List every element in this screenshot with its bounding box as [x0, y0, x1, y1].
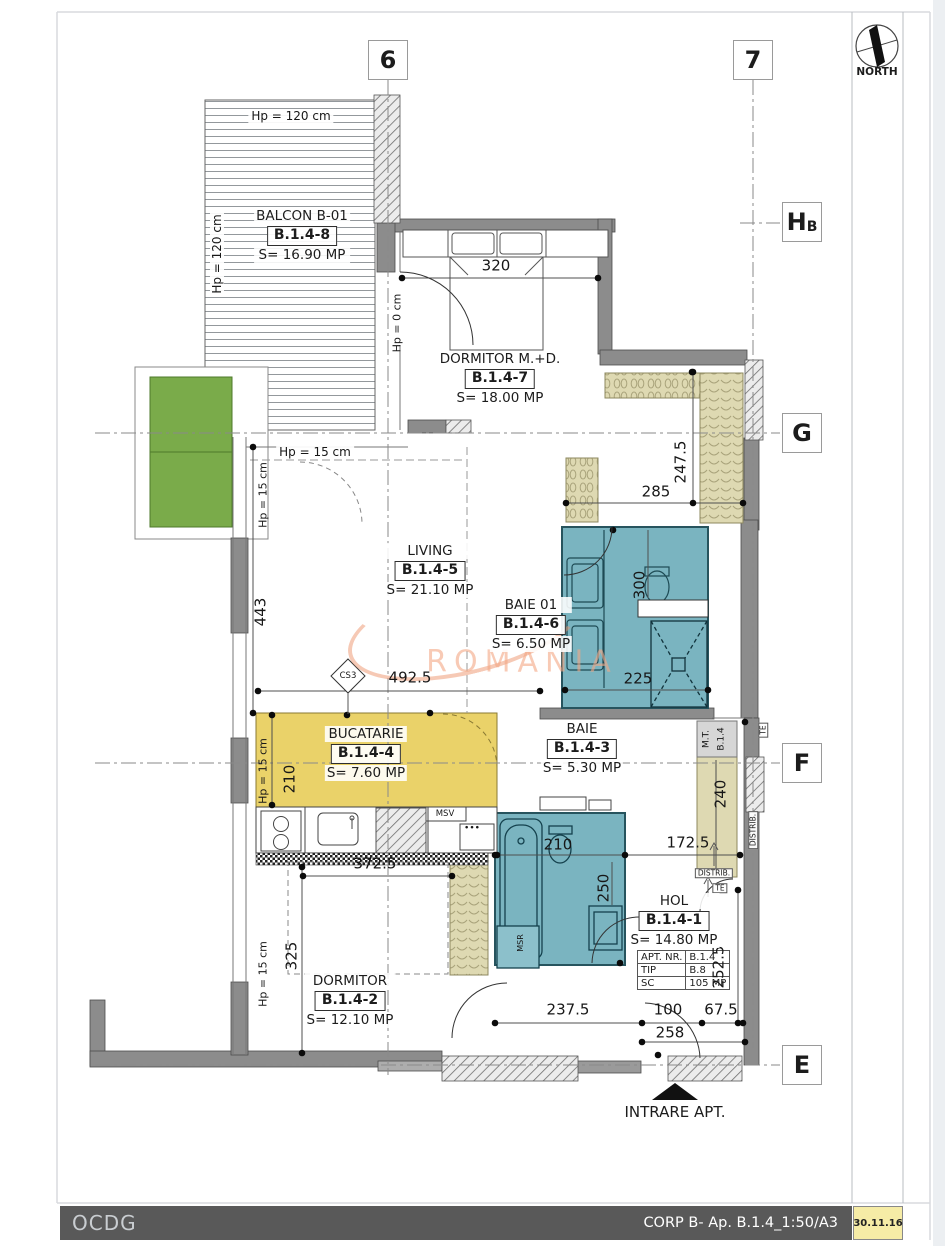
- room-code: B.1.4-3: [547, 739, 617, 758]
- apt-table-cell: SC: [638, 977, 686, 990]
- title-bar: OCDG CORP B- Ap. B.1.4_1:50/A3: [60, 1206, 852, 1240]
- dimension-label: 320: [482, 259, 511, 274]
- dimension-label: 372.5: [354, 857, 397, 872]
- room-area: S= 5.30 MP: [541, 760, 623, 776]
- dimension-label: 300: [633, 571, 648, 600]
- distrib-strip: [697, 757, 737, 877]
- grid-row-H: HB: [782, 202, 822, 242]
- annotation-label: Hp = 15 cm: [276, 445, 354, 459]
- annotation-label: Hp = 120 cm: [210, 211, 224, 296]
- dimension-label: 250: [597, 874, 612, 903]
- room-name: HOL: [629, 893, 720, 909]
- pillow: [452, 233, 494, 254]
- title-bar-left: OCDG: [72, 1211, 137, 1235]
- room-area: S= 16.90 MP: [254, 247, 350, 263]
- annotation-label: Hp = 15 cm: [258, 462, 269, 528]
- room-label-block: BAIE 01B.1.4-6S= 6.50 MP: [490, 597, 572, 652]
- entrance-arrow-icon: [652, 1083, 698, 1100]
- shower: [651, 621, 707, 707]
- room-code: B.1.4-4: [331, 744, 401, 763]
- door-bedroom-2: [452, 983, 507, 1038]
- room-name: BUCATARIE: [325, 726, 407, 742]
- annotation-label: DISTRIB.: [748, 811, 758, 849]
- room-label-block: HOLB.1.4-1S= 14.80 MP: [629, 893, 720, 948]
- floor-plan-sheet: ROMANIA NORTH APT. NR. B.1.4 TIP B.8 SC …: [0, 0, 945, 1246]
- room-name: DORMITOR M.+D.: [438, 351, 563, 367]
- room-area: S= 14.80 MP: [629, 932, 720, 948]
- date-box: 30.11.16: [853, 1206, 903, 1240]
- room-label-block: BAIEB.1.4-3S= 5.30 MP: [541, 721, 623, 776]
- north-label: NORTH: [856, 66, 897, 78]
- wardrobe-right: [700, 373, 743, 523]
- room-code: B.1.4-6: [496, 615, 566, 634]
- room-label-block: LIVINGB.1.4-5S= 21.10 MP: [385, 543, 476, 598]
- annotation-label: Hp = 0 cm: [392, 294, 403, 353]
- annotation-label: TE: [712, 883, 727, 893]
- apt-table-cell: APT. NR.: [638, 951, 686, 964]
- dimension-label: 225: [624, 672, 653, 687]
- dimension-label: 67.5: [704, 1003, 737, 1018]
- annotation-label: M.T.: [703, 730, 712, 748]
- dimension-label: 443: [254, 598, 269, 627]
- title-bar-right: CORP B- Ap. B.1.4_1:50/A3: [643, 1215, 838, 1231]
- apt-table-cell: TIP: [638, 964, 686, 977]
- annotation-label: TE: [758, 722, 768, 737]
- north-compass-icon: [856, 25, 898, 67]
- room-name: BAIE 01: [490, 597, 572, 613]
- dimension-label: 492.5: [389, 671, 432, 686]
- dimension-label: 240: [714, 780, 729, 809]
- room-name: BAIE: [541, 721, 623, 737]
- room-name: LIVING: [385, 543, 476, 559]
- room-name: BALCON B-01: [254, 208, 350, 224]
- annotation-label: •••: [464, 825, 480, 834]
- grid-row-F: F: [782, 743, 822, 783]
- wardrobe-top: [605, 373, 700, 398]
- room-area: S= 6.50 MP: [490, 636, 572, 652]
- room-code: B.1.4-5: [395, 561, 465, 580]
- annotation-label: CS3: [340, 672, 357, 681]
- annotation-label: Hp = 120 cm: [248, 109, 333, 123]
- dimension-label: 247.5: [674, 441, 689, 484]
- dimension-label: 172.5: [667, 836, 710, 851]
- pillow: [500, 233, 542, 254]
- dimension-label: 210: [544, 838, 573, 853]
- room-code: B.1.4-7: [465, 369, 535, 388]
- dimension-label: 325: [285, 942, 300, 971]
- dimension-label: 285: [642, 485, 671, 500]
- annotation-label: MSV: [436, 810, 455, 819]
- grid-row-G: G: [782, 413, 822, 453]
- room-area: S= 12.10 MP: [305, 1012, 396, 1028]
- room-label-block: DORMITORB.1.4-2S= 12.10 MP: [305, 973, 396, 1028]
- bed-bedroom2: [288, 862, 448, 974]
- door-living: [300, 462, 362, 524]
- annotation-label: Hp = 15 cm: [258, 941, 269, 1007]
- wardrobe-bedroom2: [450, 852, 488, 975]
- dimension-label: 252.5: [712, 946, 727, 989]
- room-label-block: DORMITOR M.+D.B.1.4-7S= 18.00 MP: [438, 351, 563, 406]
- grid-column-7: 7: [733, 40, 773, 80]
- grid-column-6: 6: [368, 40, 408, 80]
- dimension-label: 100: [654, 1003, 683, 1018]
- annotation-label: B.1.4: [718, 727, 727, 750]
- room-name: DORMITOR: [305, 973, 396, 989]
- dimension-label: 258: [656, 1026, 685, 1041]
- dimension-label: 210: [283, 765, 298, 794]
- wardrobe-small: [566, 458, 598, 522]
- room-code: B.1.4-2: [315, 991, 385, 1010]
- entrance-label: INTRARE APT.: [624, 1103, 725, 1121]
- grid-row-E: E: [782, 1045, 822, 1085]
- room-label-block: BUCATARIEB.1.4-4S= 7.60 MP: [325, 726, 407, 781]
- annotation-label: MSR: [517, 934, 525, 952]
- room-area: S= 21.10 MP: [385, 582, 476, 598]
- room-code: B.1.4-8: [267, 226, 337, 245]
- room-area: S= 18.00 MP: [438, 390, 563, 406]
- dimension-label: 237.5: [547, 1003, 590, 1018]
- room-label-block: BALCON B-01B.1.4-8S= 16.90 MP: [254, 208, 350, 263]
- annotation-label: DISTRIB.: [695, 868, 733, 878]
- annotation-label: Hp = 15 cm: [258, 738, 269, 804]
- room-code: B.1.4-1: [639, 911, 709, 930]
- planter-box: [135, 367, 268, 539]
- bed-master: [403, 230, 608, 350]
- room-area: S= 7.60 MP: [325, 765, 407, 781]
